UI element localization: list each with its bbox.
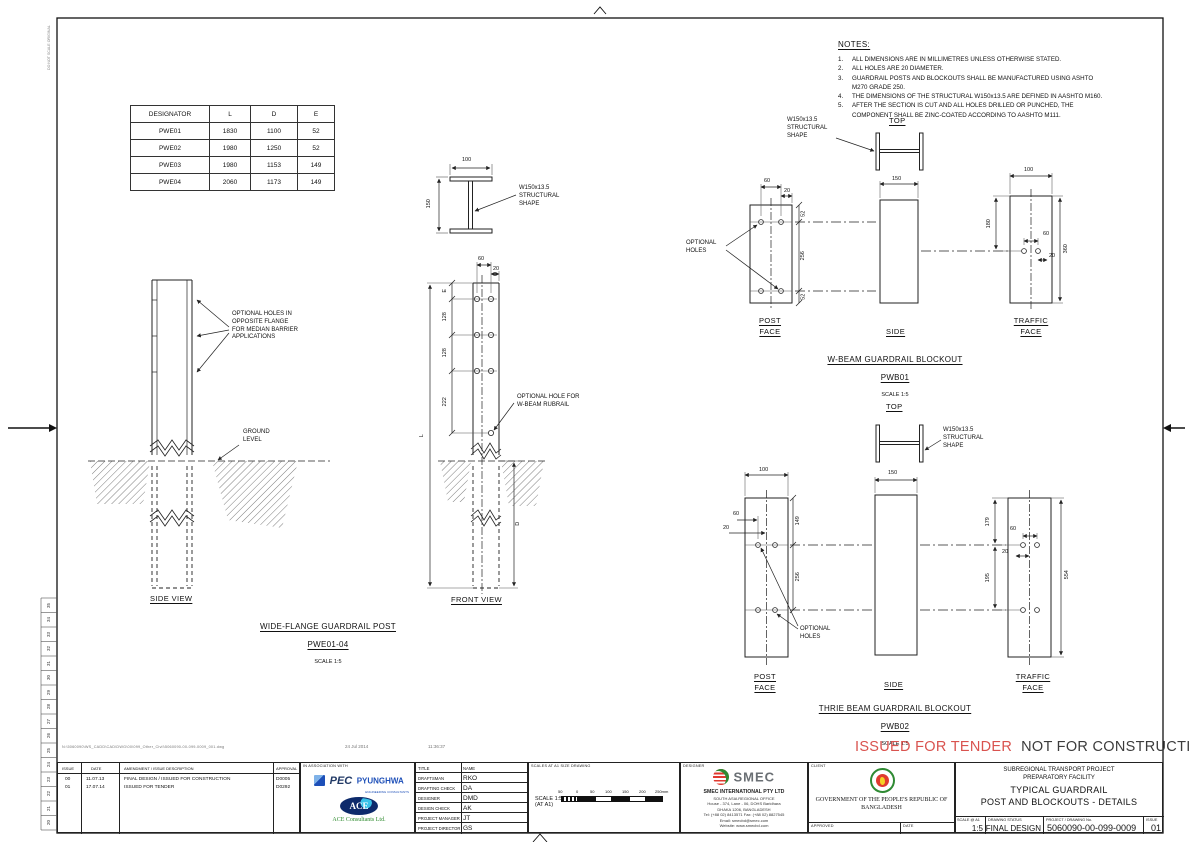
pwb01-shape-callout: W150x13.5 STRUCTURAL SHAPE (787, 117, 827, 140)
dim-front-128a: 128 (443, 312, 449, 321)
e-header: E (298, 106, 335, 123)
ruler-number: 21 (41, 801, 57, 816)
issue-no: 00 (65, 777, 70, 782)
cell: 52 (298, 140, 335, 157)
pwb01-dim-256: 256 (801, 251, 807, 260)
pwb02-code: PWB02 (881, 722, 910, 731)
ace-logo-icon: ACE (340, 797, 378, 815)
pwb02-title: THRIE BEAM GUARDRAIL BLOCKOUT (819, 704, 971, 713)
drawing-sheet: DO NOT SCALE ORIGINAL OPTIONAL HOLES IN … (0, 0, 1191, 842)
cell: 1153 (251, 157, 298, 174)
dim-front-e: E (443, 289, 449, 293)
pwb02-linework (729, 425, 1064, 665)
drawing-title-line1: TYPICAL GUARDRAIL (956, 785, 1162, 795)
description-header: AMENDMENT / ISSUE DESCRIPTION (124, 766, 194, 771)
client-name: GOVERNMENT OF THE PEOPLE'S REPUBLIC OF B… (809, 796, 954, 813)
pyunghwa-subtext: ENGINEERING CONSULTANTS (309, 790, 409, 794)
pwb02-dim-149: 149 (796, 516, 802, 525)
scale-tick: 250mm (655, 789, 668, 794)
post-title: WIDE-FLANGE GUARDRAIL POST (260, 622, 396, 631)
pwb02-top-label: TOP (886, 401, 902, 412)
note-number: 3. (838, 74, 852, 93)
bangladesh-emblem-icon (870, 768, 895, 793)
issue-date: 17.07.14 (86, 785, 105, 790)
front-view-label: FRONT VIEW (451, 594, 502, 605)
dim-section-depth: 150 (427, 199, 433, 208)
note-item: 1.ALL DIMENSIONS ARE IN MILLIMETRES UNLE… (838, 55, 1138, 64)
pwb02-dim-179: 179 (986, 517, 992, 526)
pwb01-side-label: SIDE (886, 326, 905, 337)
role-name: DA (463, 785, 472, 792)
role-label: DRAFTING CHECK (418, 786, 455, 791)
pwb02-optional-holes: OPTIONAL HOLES (800, 626, 830, 642)
role-label: PROJECT MANAGER (418, 816, 460, 821)
pwb02-dim-100: 100 (759, 468, 768, 474)
ruler-number: 25 (41, 743, 57, 758)
smec-logo-text: SMEC (733, 769, 775, 784)
table-row: PWE021980125052 (131, 140, 335, 157)
pec-logo-text: PEC (330, 775, 353, 787)
pwb01-traffic-face-label: TRAFFIC FACE (1006, 315, 1056, 338)
cell: 1100 (251, 123, 298, 140)
title-header: TITLE (418, 766, 429, 771)
pwb01-title: W-BEAM GUARDRAIL BLOCKOUT (827, 355, 962, 364)
scale-tick: 0 (576, 789, 578, 794)
scale-tick: 200 (639, 789, 646, 794)
post-section-linework (436, 164, 516, 233)
dim-front-222: 222 (443, 397, 449, 406)
project-name: SUBREGIONAL TRANSPORT PROJECT PREPARATOR… (956, 766, 1162, 782)
note-item: 3.GUARDRAIL POSTS AND BLOCKOUTS SHALL BE… (838, 74, 1138, 93)
rubrail-callout: OPTIONAL HOLE FOR W-BEAM RUBRAIL (517, 394, 579, 410)
date-label: DATE (903, 824, 914, 828)
ruler-number: 31 (41, 656, 57, 671)
smec-address-line: Website: www.smecbd.com (681, 823, 807, 828)
ruler-number: 20 (41, 816, 57, 831)
issue-table: ISSUE DATE AMENDMENT / ISSUE DESCRIPTION… (57, 762, 300, 833)
drawing-status-label: DRAWING STATUS (988, 818, 1022, 822)
note-text: ALL HOLES ARE 20 DIAMETER. (852, 64, 1104, 73)
post-scale: SCALE 1:5 (314, 659, 341, 665)
scale-note: SCALE 1:5 (AT A1) (535, 796, 562, 808)
cell: PWE01 (131, 123, 210, 140)
ruler-number: 24 (41, 758, 57, 773)
designator-table: DESIGNATOR L D E PWE011830110052 PWE0219… (130, 105, 335, 191)
pyunghwa-text: PYUNGHWA (357, 776, 404, 785)
pec-logo-icon (314, 775, 325, 786)
note-text: THE DIMENSIONS OF THE STRUCTURAL W150x13… (852, 92, 1104, 101)
ruler-number: 30 (41, 671, 57, 686)
cell: 1250 (251, 140, 298, 157)
role-name: JT (463, 815, 470, 822)
pwb02-dim-256: 256 (796, 572, 802, 581)
issue-desc: ISSUED FOR TENDER (124, 785, 174, 790)
pwb01-code: PWB01 (881, 373, 910, 382)
l-header: L (210, 106, 251, 123)
project-cell: SUBREGIONAL TRANSPORT PROJECT PREPARATOR… (955, 762, 1163, 833)
note-number: 2. (838, 64, 852, 73)
scale-tick: 100 (605, 789, 612, 794)
approved-label: APPROVED (811, 824, 834, 828)
issue-header: ISSUE (62, 766, 74, 771)
status-stamp: ISSUED FOR TENDERNOT FOR CONSTRUCTION (855, 739, 1161, 755)
pwb01-dim-52b: 52 (801, 294, 807, 300)
cell: PWE02 (131, 140, 210, 157)
d-header: D (251, 106, 298, 123)
post-designators: PWE01-04 (307, 640, 348, 649)
dim-section-flange: 100 (462, 158, 471, 164)
ruler-number: 22 (41, 787, 57, 802)
issue-date: 11.07.13 (86, 777, 104, 782)
pwb02-dim-20: 20 (723, 526, 729, 532)
section-shape-callout: W150x13.5 STRUCTURAL SHAPE (519, 185, 559, 208)
cell: 149 (298, 157, 335, 174)
pwb01-dim-20: 20 (784, 189, 790, 195)
cell: PWE03 (131, 157, 210, 174)
plot-time: 11:36:37 (428, 744, 445, 749)
association-label: IN ASSOCIATION WITH (303, 764, 348, 768)
title-block: ISSUE DATE AMENDMENT / ISSUE DESCRIPTION… (57, 762, 1163, 833)
side-view-label: SIDE VIEW (150, 593, 192, 604)
role-label: DRAFTSMAN (418, 776, 444, 781)
scale-tick: 150 (622, 789, 629, 794)
drawing-status-value: FINAL DESIGN (986, 824, 1041, 833)
association-cell: IN ASSOCIATION WITH PEC PYUNGHWA ENGINEE… (300, 762, 415, 833)
note-number: 1. (838, 55, 852, 64)
table-row: PWE0420601173149 (131, 174, 335, 191)
pwb02-dim-150: 150 (888, 471, 897, 477)
pwb01-dim-h20: 20 (1049, 254, 1055, 260)
cell: 1173 (251, 174, 298, 191)
date-header: DATE (91, 766, 101, 771)
cell: 1980 (210, 157, 251, 174)
ruler-number: 28 (41, 700, 57, 715)
table-row: PWE0319801153149 (131, 157, 335, 174)
ground-level-callout: GROUND LEVEL (243, 429, 270, 445)
ruler-number: 23 (41, 772, 57, 787)
smec-globe-icon (713, 769, 729, 785)
scales-label: SCALES AT A1 SIZE DRAWING (531, 764, 591, 768)
do-not-scale-note: DO NOT SCALE ORIGINAL (47, 25, 51, 70)
role-name: DMD (463, 795, 478, 802)
name-header: NAME (463, 766, 475, 771)
issue-no: 01 (65, 785, 70, 790)
dim-front-embed: D (516, 522, 522, 526)
ace-name: ACE Consultants Ltd. (309, 817, 409, 823)
client-cell: CLIENT GOVERNMENT OF THE PEOPLE'S REPUBL… (808, 762, 955, 833)
issue-approval: D0005 (276, 777, 290, 782)
role-name: AK (463, 805, 472, 812)
note-number: 4. (838, 92, 852, 101)
note-text: AFTER THE SECTION IS CUT AND ALL HOLES D… (852, 101, 1104, 120)
dim-front-length: L (420, 434, 426, 437)
pwb01-dim-52t: 52 (801, 211, 807, 217)
pwb02-dim-554: 554 (1065, 570, 1071, 579)
role-name: RKO (463, 775, 477, 782)
scales-cell: SCALES AT A1 SIZE DRAWING SCALE 1:5 (AT … (528, 762, 680, 833)
pwb01-dim-h60: 60 (1043, 232, 1049, 238)
issue-desc: FINAL DESIGN / ISSUED FOR CONSTRUCTION (124, 777, 230, 782)
client-label: CLIENT (811, 764, 826, 768)
plot-date: 24 Jul 2014 (345, 744, 368, 749)
scale-label: SCALE @ A1 (957, 818, 980, 822)
cell: 2060 (210, 174, 251, 191)
scale-tick: 50 (558, 789, 562, 794)
role-label: PROJECT DIRECTOR (418, 826, 460, 831)
pwb01-dim-100: 100 (1024, 168, 1033, 174)
ruler-number: 27 (41, 714, 57, 729)
ruler-number: 29 (41, 685, 57, 700)
pwb01-dim-360: 360 (1064, 244, 1070, 253)
pwb01-post-face-label: POST FACE (745, 315, 795, 338)
role-label: DESIGN CHECK (418, 806, 450, 811)
cell: 1830 (210, 123, 251, 140)
scale-value: 1:5 (972, 824, 983, 833)
smec-company: SMEC INTERNATIONAL PTY LTD (681, 789, 807, 795)
pwb02-shape-callout: W150x13.5 STRUCTURAL SHAPE (943, 427, 983, 450)
pwb02-dim-h60: 60 (1010, 527, 1016, 533)
pwb01-dim-60: 60 (764, 179, 770, 185)
cell: 52 (298, 123, 335, 140)
not-for-construction-stamp: NOT FOR CONSTRUCTION (1021, 739, 1191, 755)
issue-value: 01 (1151, 823, 1161, 833)
designer-cell: DESIGNER SMEC SMEC INTERNATIONAL PTY LTD… (680, 762, 808, 833)
table-row: PWE011830110052 (131, 123, 335, 140)
ruler-number: 35 (41, 598, 57, 613)
ruler-number: 33 (41, 627, 57, 642)
pwb02-side-label: SIDE (884, 679, 903, 690)
notes-block: NOTES: 1.ALL DIMENSIONS ARE IN MILLIMETR… (838, 40, 1138, 120)
designator-header: DESIGNATOR (131, 106, 210, 123)
drawing-title-line2: POST AND BLOCKOUTS - DETAILS (956, 797, 1162, 807)
pwb01-optional-holes: OPTIONAL HOLES (686, 240, 716, 256)
cell: 1980 (210, 140, 251, 157)
dim-front-spacing: 60 (478, 257, 484, 263)
pwb01-dim-180: 180 (987, 219, 993, 228)
pwb02-post-face-label: POST FACE (740, 671, 790, 694)
pwb01-scale: SCALE 1:5 (881, 392, 908, 398)
file-path: N:\5060090\WS_CADD\CAD\DWG\00\099_Other_… (62, 745, 224, 749)
drawing-number-value: 5060090-00-099-0009 (1047, 823, 1136, 833)
note-item: 2.ALL HOLES ARE 20 DIAMETER. (838, 64, 1138, 73)
ruler-number: 34 (41, 613, 57, 628)
approval-header: APPROVAL (276, 766, 297, 771)
issued-for-tender-stamp: ISSUED FOR TENDER (855, 739, 1012, 755)
dim-front-128b: 128 (443, 348, 449, 357)
pwb02-dim-60: 60 (733, 512, 739, 518)
dim-front-edge: 20 (493, 267, 499, 273)
cell: PWE04 (131, 174, 210, 191)
ruler-number: 26 (41, 729, 57, 744)
ruler-number: 32 (41, 642, 57, 657)
note-item: 4.THE DIMENSIONS OF THE STRUCTURAL W150x… (838, 92, 1138, 101)
note-text: ALL DIMENSIONS ARE IN MILLIMETRES UNLESS… (852, 55, 1104, 64)
drawing-number-label: PROJECT / DRAWING No. (1046, 818, 1092, 822)
note-text: GUARDRAIL POSTS AND BLOCKOUTS SHALL BE M… (852, 74, 1104, 93)
note-item: 5.AFTER THE SECTION IS CUT AND ALL HOLES… (838, 101, 1138, 120)
role-label: DESIGNER (418, 796, 440, 801)
scale-tick: 50 (590, 789, 594, 794)
pwb02-dim-h20: 20 (1002, 550, 1008, 556)
notes-title: NOTES: (838, 40, 1138, 49)
pwb01-linework (726, 133, 1063, 310)
pwb02-traffic-face-label: TRAFFIC FACE (1008, 671, 1058, 694)
role-name: GS (463, 825, 472, 832)
note-number: 5. (838, 101, 852, 120)
cell: 149 (298, 174, 335, 191)
pwb01-dim-150: 150 (892, 177, 901, 183)
issue-label: ISSUE (1146, 818, 1157, 822)
optional-holes-callout: OPTIONAL HOLES IN OPPOSITE FLANGE FOR ME… (232, 311, 298, 342)
personnel-table: TITLENAME DRAFTSMANRKO DRAFTING CHECKDA … (415, 762, 528, 833)
issue-approval: D0292 (276, 785, 290, 790)
pwb02-dim-195: 195 (986, 573, 992, 582)
